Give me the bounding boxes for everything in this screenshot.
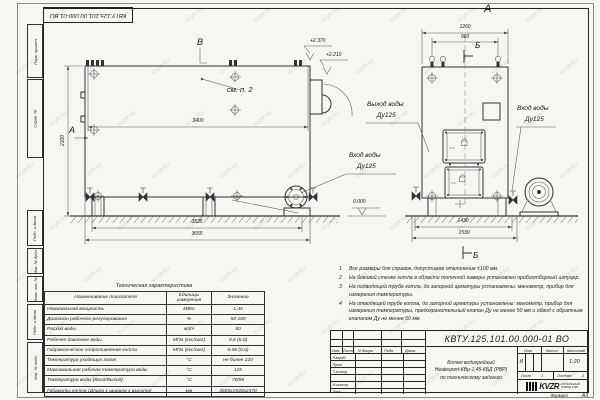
inlet-label-front: Вход воды xyxy=(517,106,549,113)
row-utv: Утв. xyxy=(333,389,342,394)
tech-table-row: Температура воды (Вход/Выход) °С 70/95 xyxy=(45,376,265,386)
tech-table-row: Максимальная рабочая температура воды °С… xyxy=(45,366,265,376)
row-tkontr: Т.контр. xyxy=(333,369,349,374)
stamp-inv-dubl: Инв. № дубл. xyxy=(27,248,43,274)
elevation-2370: +2.370 xyxy=(310,39,325,44)
tech-col-value: Значение xyxy=(212,292,265,305)
view-marker-v: В xyxy=(197,38,203,47)
tech-table-row: Рабочее давление воды МПа (кгс/см2) 0,6 … xyxy=(45,335,265,345)
scale-value: 1:20 xyxy=(569,359,580,365)
col-dokum: N докум. xyxy=(358,348,374,353)
dim-1260: 1260 xyxy=(459,25,470,30)
col-data: Дата xyxy=(405,348,415,353)
kvzr-logo-subtext: КОТЕЛЬНЫЙ ЗАВОД РЭП xyxy=(561,383,580,390)
format-label: Формат xyxy=(550,393,567,399)
tech-table-row: Диапазон рабочего регулирования % 50-100 xyxy=(45,315,265,325)
inlet-label-side: Вход воды xyxy=(349,153,381,160)
section-marker-b-top: Б xyxy=(475,42,480,50)
col-list: Лист xyxy=(343,348,353,353)
col-izm: Изм. xyxy=(332,348,340,353)
note-item: 3 На подводящей трубе котла, до запорной… xyxy=(339,284,592,299)
mass-header: Масса xyxy=(546,348,558,353)
section-marker-a: А xyxy=(69,126,75,135)
drawing-sheet: { "sheet": { "watermark": "KVZR.RU", "do… xyxy=(0,0,600,400)
dim-1530: 1530 xyxy=(458,231,469,236)
watermark-text: KVZR.RU xyxy=(0,6,1,24)
stamp-podp-data-2: Подп. и дата xyxy=(27,304,43,340)
top-doc-number: КВТУ.125.101.00.000-01 ВО xyxy=(50,12,126,18)
elevation-zero: 0.000 xyxy=(353,200,366,205)
see-note-ref: см. п. 2 xyxy=(227,86,253,94)
lit-value: И xyxy=(520,359,524,365)
tech-table-title: Техническая характеристика xyxy=(44,283,264,289)
outlet-dn: Ду125 xyxy=(377,113,396,120)
tech-col-name: Наименование показателя xyxy=(45,292,167,305)
sheet-label: Лист xyxy=(521,373,531,378)
inlet-dn-front: Ду125 xyxy=(525,117,544,124)
tech-table-row: Температура уходящих газов °С не более 2… xyxy=(45,355,265,365)
note-item: 1 Все размеры для справок, допустимое от… xyxy=(339,266,592,274)
stamp-perv-primen: Перв. примен. xyxy=(27,24,43,78)
elevation-2210: +2.210 xyxy=(326,53,341,58)
row-nkontr: Н.контр. xyxy=(333,382,349,387)
row-razrab: Разраб. xyxy=(333,355,347,360)
col-podp: Подп. xyxy=(384,348,394,353)
top-doc-number-box: КВТУ.125.101.00.000-01 ВО xyxy=(43,7,133,23)
doc-number: КВТУ.125.101.00.000-01 ВО xyxy=(425,331,589,346)
product-name: Котел водогрейный Heatexpert-КВр-1,45-КБ… xyxy=(425,346,517,394)
note-item: 2 На боковой стенке котла в области топо… xyxy=(339,275,592,283)
product-name-line2: Heatexpert-КВр-1,45-КБД (РВР) xyxy=(435,367,508,373)
format-row: Формат А3 xyxy=(505,393,588,399)
row-prov: Пров. xyxy=(333,362,343,367)
watermark-text: KVZR.RU xyxy=(0,214,1,232)
kvzr-logo-text: KVZR xyxy=(539,382,559,391)
manufacturer-logo: KVZR КОТЕЛЬНЫЙ ЗАВОД РЭП xyxy=(518,379,588,393)
dim-3400: 3400 xyxy=(192,119,203,124)
front-view-title: А xyxy=(484,4,491,15)
watermark-text: KVZR.RU xyxy=(0,318,1,336)
product-name-line1: Котел водогрейный xyxy=(447,360,495,366)
tech-table: Наименование показателя Единицы измерени… xyxy=(44,291,265,397)
kvzr-logo-mark xyxy=(526,382,537,391)
stamp-sprav-no: Справ. № xyxy=(27,79,43,158)
section-marker-b-bottom: Б xyxy=(473,252,478,260)
tech-table-row: Номинальная мощность МВт 1,45 xyxy=(45,305,265,315)
stamp-vzam-inv: Взам. инв. № xyxy=(27,276,43,302)
dim-1430: 1430 xyxy=(457,219,468,224)
dim-2300: 2300 xyxy=(61,135,66,146)
title-block: Изм. Лист N докум. Подп. Дата Разраб. Пр… xyxy=(330,330,588,393)
outlet-label: Выход воды xyxy=(367,102,404,109)
tech-characteristics: Техническая характеристика Наименование … xyxy=(44,283,264,397)
format-value: А3 xyxy=(582,393,588,399)
scale-header: Масштаб xyxy=(567,348,585,353)
notes-list: 1 Все размеры для справок, допустимое от… xyxy=(339,266,592,325)
sheet-value: 1 xyxy=(541,373,543,378)
note-item: 4 На отводящей трубе котла, до запорной … xyxy=(339,301,592,324)
stamp-inv-podl: Инв. № подл. xyxy=(27,342,43,393)
tech-table-row: Габариты котла (Длина х ширина х высота)… xyxy=(45,386,265,396)
watermark-text: KVZR.RU xyxy=(0,110,1,128)
inlet-dn-side: Ду125 xyxy=(357,164,376,171)
tech-table-row: Гидравлическое сопротивление котла МПа (… xyxy=(45,345,265,355)
dim-3655: 3655 xyxy=(191,232,202,237)
tech-table-row: Расход воды м3/ч 50 xyxy=(45,325,265,335)
sheets-label: Листов xyxy=(557,373,571,378)
lit-header: Лит. xyxy=(524,348,533,353)
dim-960: 960 xyxy=(461,35,469,40)
stamp-podp-data-1: Подп. и дата xyxy=(27,210,43,246)
tech-col-unit: Единицы измерения xyxy=(167,292,212,305)
sheets-value: 2 xyxy=(582,373,584,378)
dim-3535: 3535 xyxy=(191,220,202,225)
product-name-line3: по техническому заданию xyxy=(440,375,502,381)
